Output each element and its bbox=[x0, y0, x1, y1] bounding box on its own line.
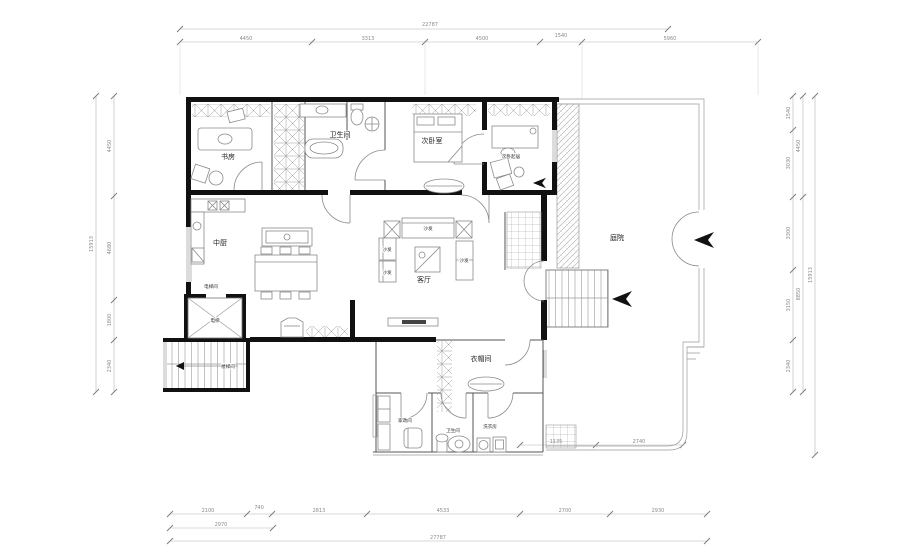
label-elevator-hall: 电梯间 bbox=[204, 283, 218, 290]
dim-left-4: 2340 bbox=[107, 360, 113, 373]
cloakroom-wardrobe bbox=[437, 340, 452, 412]
entry-direction-arrow bbox=[694, 232, 714, 248]
courtyard-step bbox=[687, 347, 704, 359]
exterior-stair bbox=[546, 270, 608, 327]
hall-wardrobe bbox=[274, 104, 304, 190]
floor-plan-drawing: 22787 4450 3313 4500 1540 5960 2100 740 … bbox=[0, 0, 920, 560]
dim-top-3: 4500 bbox=[476, 36, 489, 42]
dim-bottom-4: 4533 bbox=[437, 508, 450, 514]
dim-top-5: 5960 bbox=[664, 36, 677, 42]
dim-top-4: 1540 bbox=[555, 33, 568, 39]
bench-cabinet bbox=[306, 326, 348, 337]
closet-strip-lounge bbox=[488, 104, 550, 116]
courtyard-walkway-hatch bbox=[557, 104, 579, 268]
label-living: 客厅 bbox=[417, 275, 431, 284]
label-bedroom2-lounge: 次卧起居 bbox=[502, 153, 521, 160]
dim-inner-2: 2740 bbox=[633, 439, 646, 445]
dim-right-1: 1540 bbox=[786, 107, 792, 120]
label-sofa-4: 沙发 bbox=[459, 257, 469, 264]
dim-right-total: 15913 bbox=[808, 267, 814, 283]
dim-bottom-2: 740 bbox=[254, 505, 264, 511]
label-cloakroom: 衣帽间 bbox=[471, 354, 492, 363]
label-sofa-2: 沙发 bbox=[382, 246, 392, 253]
label-courtyard: 庭院 bbox=[610, 233, 624, 242]
dim-right-3: 3300 bbox=[786, 227, 792, 240]
label-utility: 家政间 bbox=[398, 417, 412, 424]
entry-tile-floor bbox=[507, 212, 541, 268]
dim-bottom-1: 2100 bbox=[202, 508, 215, 514]
dim-right-mid-1: 4450 bbox=[796, 140, 802, 153]
dim-left-1: 4450 bbox=[107, 140, 113, 153]
label-bathroom: 卫生间 bbox=[330, 130, 351, 139]
dim-bottom-3: 2813 bbox=[313, 508, 326, 514]
dim-bottom-5: 2700 bbox=[559, 508, 572, 514]
dim-bottom-total: 27787 bbox=[430, 535, 446, 541]
label-stairwell: 楼梯间 bbox=[221, 363, 235, 370]
label-bathroom2: 卫生间 bbox=[446, 427, 460, 434]
label-sofa-1: 沙发 bbox=[423, 225, 433, 232]
furniture bbox=[191, 104, 538, 452]
dim-left-2: 4680 bbox=[107, 242, 113, 255]
courtyard-grate bbox=[546, 425, 576, 448]
dim-bottom-sub: 2970 bbox=[215, 522, 228, 528]
label-sofa-3: 沙发 bbox=[382, 269, 392, 276]
dim-right-2: 3030 bbox=[786, 157, 792, 170]
dim-left-total: 15913 bbox=[89, 236, 95, 252]
floor-plan-canvas: 22787 4450 3313 4500 1540 5960 2100 740 … bbox=[0, 0, 920, 560]
label-kitchen: 中厨 bbox=[213, 238, 227, 247]
dim-right-5: 2340 bbox=[786, 360, 792, 373]
courtyard-area bbox=[546, 99, 714, 450]
label-bedroom2: 次卧室 bbox=[422, 136, 443, 145]
dim-top-2: 3313 bbox=[362, 36, 375, 42]
label-laundry: 洗衣房 bbox=[483, 423, 497, 430]
label-elevator: 电梯 bbox=[210, 317, 220, 324]
dim-right-mid-2: 8850 bbox=[796, 288, 802, 301]
dim-top-1: 4450 bbox=[240, 36, 253, 42]
lounge-arrow-icon bbox=[533, 178, 546, 188]
label-study: 书房 bbox=[221, 152, 235, 161]
dim-bottom-6: 2930 bbox=[652, 508, 665, 514]
dim-top-total: 22787 bbox=[422, 22, 438, 28]
stair-direction-arrow bbox=[612, 291, 632, 307]
dim-left-3: 1800 bbox=[107, 314, 113, 327]
dim-right-4: 3150 bbox=[786, 299, 792, 312]
